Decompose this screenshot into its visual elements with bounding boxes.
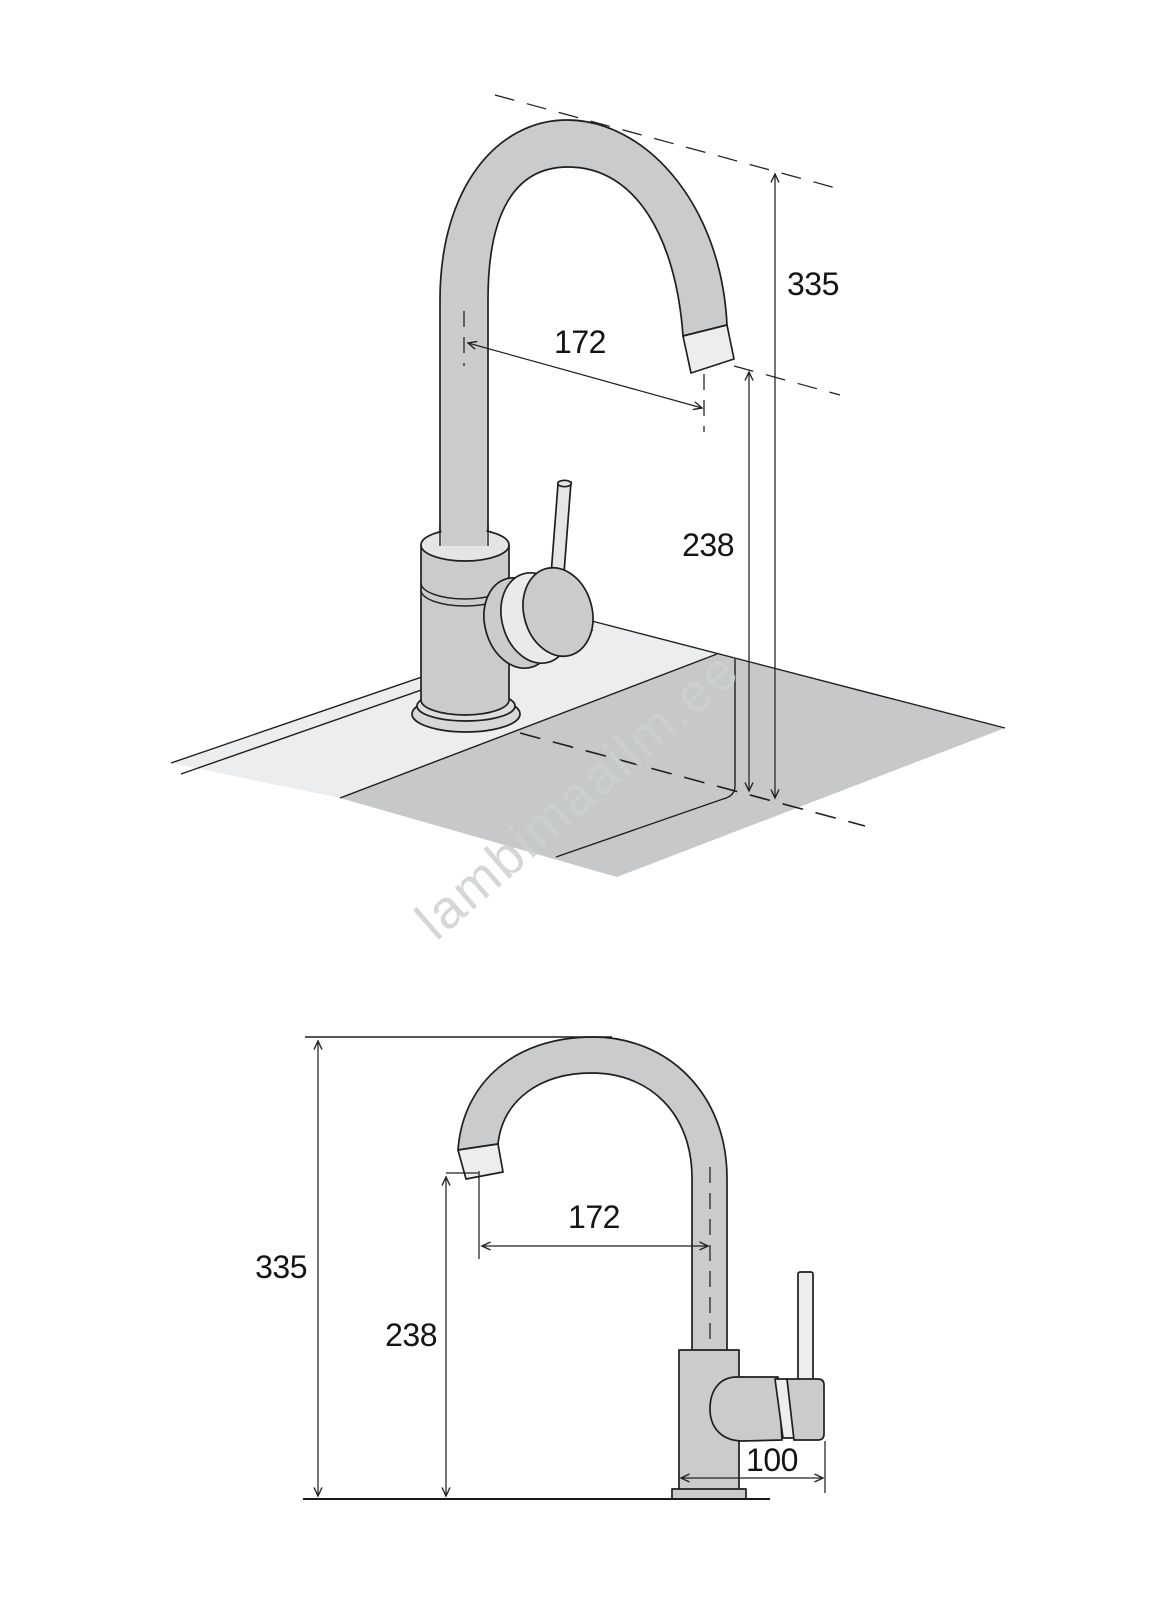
dim-label-total-height-side: 335 — [255, 1249, 307, 1285]
dim-label-spout-reach: 172 — [554, 324, 606, 360]
dim-label-spout-height: 238 — [682, 527, 734, 563]
faucet-perspective-view: lambimaailm.ee 335 238 172 — [171, 95, 1005, 951]
handle-joint-side — [710, 1377, 782, 1441]
handle-lever — [551, 482, 571, 575]
neck-over-cap — [442, 526, 487, 546]
handle-lever-side — [798, 1272, 813, 1382]
base-plate-side — [672, 1489, 746, 1499]
dim-label-total-height: 335 — [787, 266, 839, 302]
faucet-dimension-drawing: lambimaailm.ee 335 238 172 — [0, 0, 1169, 1600]
handle-block-side — [787, 1379, 824, 1440]
faucet-3d — [412, 120, 734, 732]
faucet-2d — [458, 1037, 824, 1499]
technical-drawing-svg: lambimaailm.ee 335 238 172 — [0, 0, 1169, 1600]
handle-lever-top — [558, 480, 572, 486]
spout-level-reference-dashed-line — [734, 366, 840, 395]
dim-label-spout-height-side: 238 — [385, 1317, 437, 1353]
dim-label-spout-reach-side: 172 — [568, 1199, 620, 1235]
spout-tip-side — [458, 1144, 503, 1179]
faucet-side-view: 335 238 172 100 — [255, 1037, 825, 1499]
spout-arc-tube-side — [458, 1037, 727, 1351]
dim-label-base-depth: 100 — [746, 1442, 798, 1478]
